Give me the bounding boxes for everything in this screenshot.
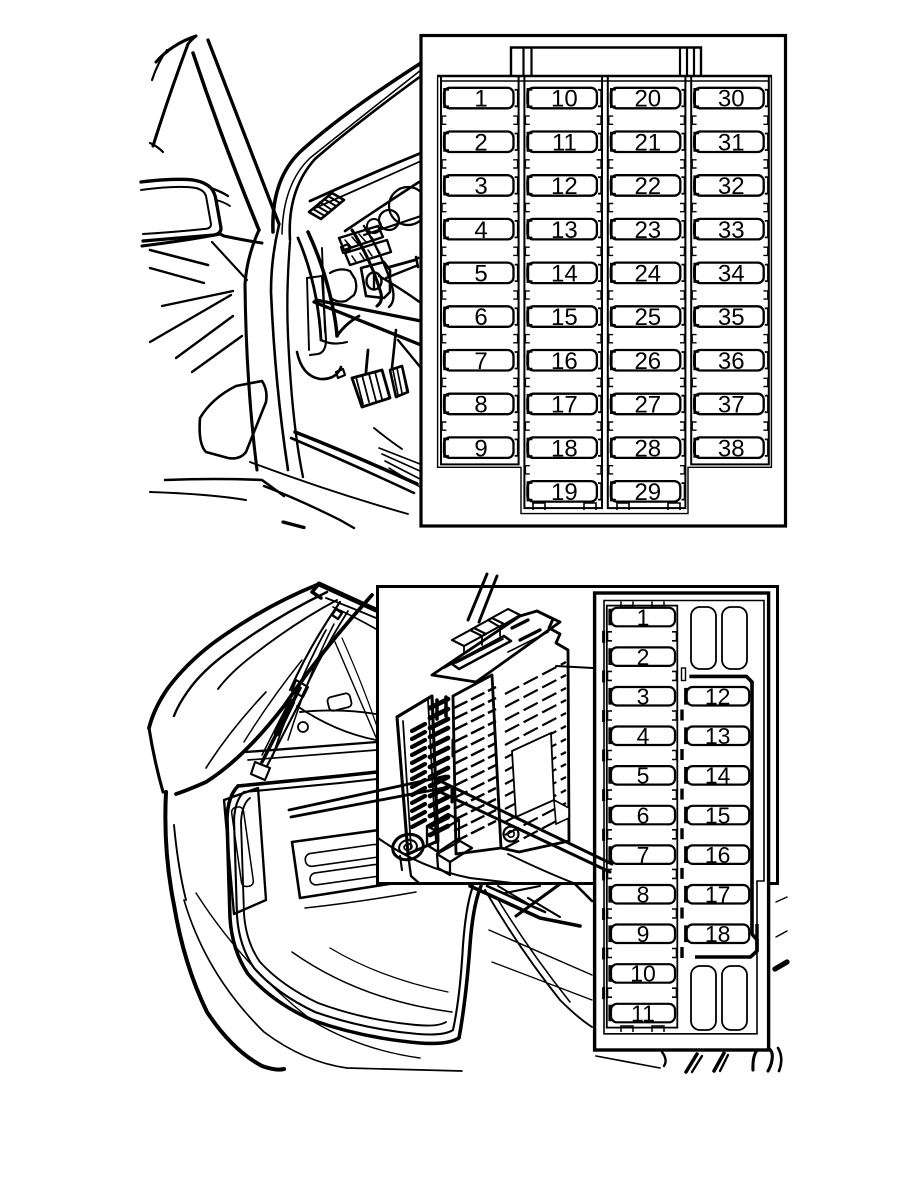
svg-text:5: 5	[474, 261, 487, 288]
svg-text:35: 35	[718, 304, 745, 331]
svg-text:11: 11	[552, 129, 577, 156]
svg-text:24: 24	[634, 261, 661, 288]
svg-text:29: 29	[634, 479, 661, 506]
svg-text:12: 12	[705, 684, 731, 710]
svg-text:32: 32	[718, 173, 745, 200]
svg-text:21: 21	[634, 129, 661, 156]
svg-text:15: 15	[705, 802, 731, 828]
svg-text:22: 22	[634, 173, 661, 200]
svg-text:38: 38	[718, 435, 745, 462]
svg-text:17: 17	[551, 392, 578, 419]
svg-text:30: 30	[718, 86, 745, 113]
svg-text:14: 14	[705, 763, 731, 789]
svg-text:16: 16	[705, 842, 731, 868]
svg-text:31: 31	[718, 129, 745, 156]
svg-text:1: 1	[474, 86, 487, 113]
svg-text:8: 8	[637, 882, 650, 908]
svg-text:33: 33	[718, 217, 745, 244]
svg-text:27: 27	[634, 392, 661, 419]
svg-text:17: 17	[705, 882, 731, 908]
svg-text:28: 28	[634, 435, 661, 462]
svg-text:37: 37	[718, 392, 745, 419]
svg-text:4: 4	[474, 217, 487, 244]
svg-text:18: 18	[705, 921, 731, 947]
svg-text:1: 1	[637, 604, 650, 630]
svg-text:20: 20	[634, 86, 661, 113]
svg-text:16: 16	[551, 348, 578, 375]
svg-text:9: 9	[637, 921, 650, 947]
svg-text:18: 18	[551, 435, 578, 462]
svg-text:11: 11	[631, 1000, 655, 1026]
svg-text:13: 13	[551, 217, 578, 244]
svg-text:36: 36	[718, 348, 745, 375]
svg-text:4: 4	[637, 723, 650, 749]
svg-text:3: 3	[474, 173, 487, 200]
svg-text:26: 26	[634, 348, 661, 375]
svg-text:15: 15	[551, 304, 578, 331]
svg-text:12: 12	[551, 173, 578, 200]
svg-text:2: 2	[474, 129, 487, 156]
svg-text:10: 10	[551, 86, 578, 113]
svg-text:14: 14	[551, 261, 578, 288]
svg-text:9: 9	[474, 435, 487, 462]
svg-text:10: 10	[630, 961, 656, 987]
svg-text:23: 23	[634, 217, 661, 244]
svg-text:6: 6	[474, 304, 487, 331]
svg-text:5: 5	[637, 763, 650, 789]
svg-text:8: 8	[474, 392, 487, 419]
svg-text:13: 13	[705, 723, 731, 749]
svg-text:7: 7	[474, 348, 487, 375]
svg-text:3: 3	[637, 684, 650, 710]
svg-text:6: 6	[637, 802, 650, 828]
svg-text:7: 7	[637, 842, 650, 868]
svg-text:34: 34	[718, 261, 745, 288]
svg-text:19: 19	[551, 479, 578, 506]
svg-text:2: 2	[637, 644, 650, 670]
svg-text:25: 25	[634, 304, 661, 331]
